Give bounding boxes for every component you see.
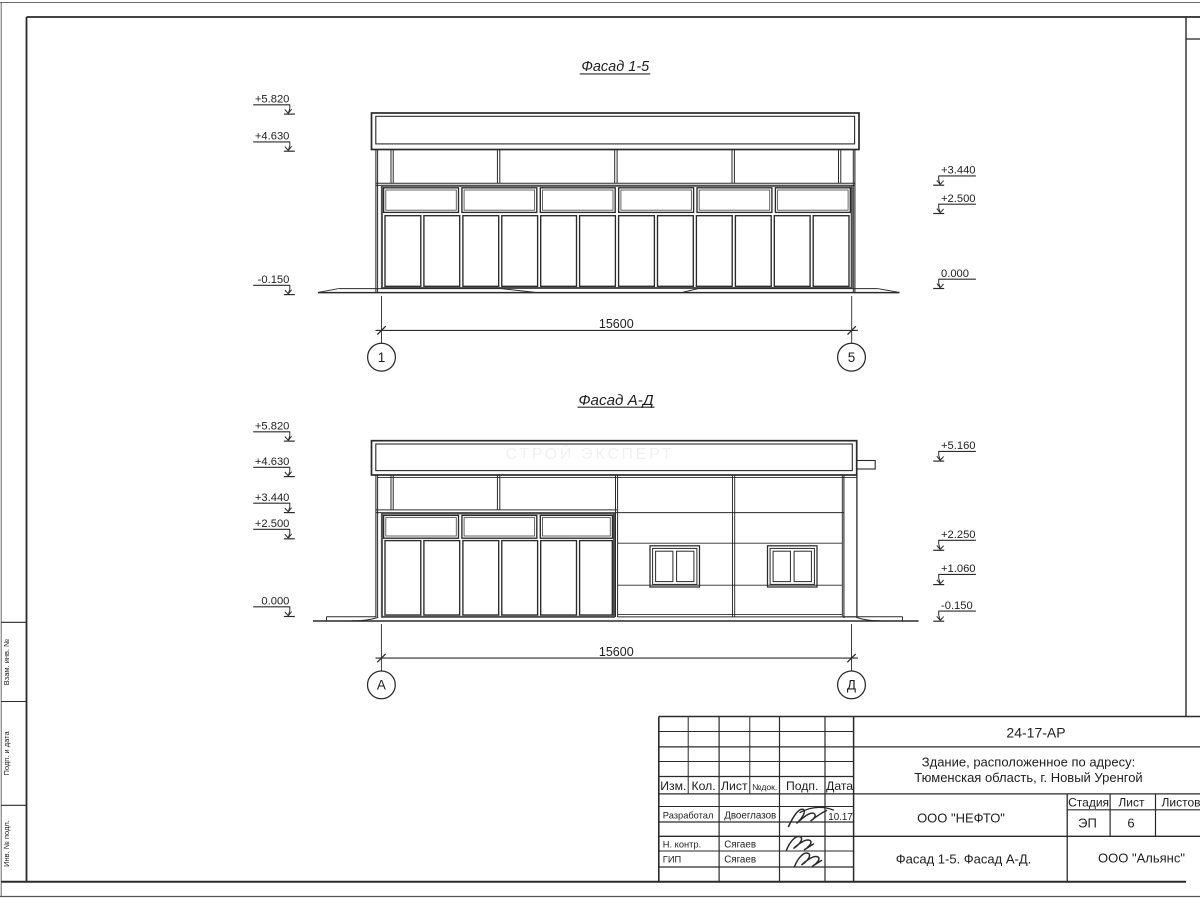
svg-text:ООО "НЕФТО": ООО "НЕФТО"	[917, 810, 1005, 825]
svg-text:+5.820: +5.820	[255, 421, 290, 433]
svg-text:+4.630: +4.630	[255, 456, 290, 468]
svg-text:Фасад 1-5: Фасад 1-5	[581, 59, 650, 75]
svg-text:Подп. и дата: Подп. и дата	[2, 730, 11, 775]
svg-text:А: А	[377, 678, 386, 693]
svg-text:Фасад 1-5. Фасад А-Д.: Фасад 1-5. Фасад А-Д.	[896, 852, 1032, 867]
svg-text:Взам. инв. №: Взам. инв. №	[2, 639, 11, 685]
svg-text:Кол.: Кол.	[692, 779, 716, 793]
svg-text:0.000: 0.000	[261, 596, 289, 608]
svg-text:+1.060: +1.060	[941, 563, 976, 575]
svg-text:+2.250: +2.250	[941, 529, 976, 541]
svg-text:СТРОЙ ЭКСПЕРТ: СТРОЙ ЭКСПЕРТ	[506, 445, 674, 463]
svg-text:Здание, расположенное по адрес: Здание, расположенное по адресу:	[922, 755, 1135, 770]
svg-text:15600: 15600	[599, 645, 634, 659]
svg-text:-0.150: -0.150	[258, 274, 290, 286]
svg-text:0.000: 0.000	[941, 268, 969, 280]
svg-text:+5.820: +5.820	[255, 94, 290, 106]
svg-text:+5.160: +5.160	[941, 440, 976, 452]
svg-text:15600: 15600	[599, 317, 634, 331]
svg-text:Д: Д	[847, 678, 856, 693]
svg-text:5: 5	[848, 350, 856, 365]
svg-text:Разработал: Разработал	[663, 811, 714, 821]
svg-text:ГИП: ГИП	[663, 855, 681, 865]
svg-text:Сягаев: Сягаев	[724, 855, 756, 866]
svg-text:Изм.: Изм.	[660, 779, 686, 793]
svg-text:Н. контр.: Н. контр.	[663, 840, 701, 850]
svg-text:24-17-АР: 24-17-АР	[1006, 725, 1065, 741]
svg-text:+3.440: +3.440	[941, 165, 976, 177]
svg-text:№док.: №док.	[752, 782, 777, 792]
svg-text:Лист: Лист	[1118, 796, 1145, 810]
svg-text:Дата: Дата	[826, 779, 853, 793]
svg-text:6: 6	[1127, 815, 1134, 830]
svg-text:Двоеглазов: Двоеглазов	[724, 811, 776, 822]
svg-text:10.17: 10.17	[828, 812, 853, 823]
svg-text:1: 1	[378, 350, 386, 365]
svg-text:+4.630: +4.630	[255, 131, 290, 143]
svg-text:Фасад А-Д: Фасад А-Д	[578, 392, 653, 409]
svg-text:ООО "Альянс": ООО "Альянс"	[1098, 850, 1185, 865]
svg-text:Подп.: Подп.	[786, 779, 818, 793]
svg-text:Тюменская область, г. Новый Ур: Тюменская область, г. Новый Уренгой	[914, 770, 1142, 785]
svg-text:Стадия: Стадия	[1068, 796, 1109, 810]
svg-text:+3.440: +3.440	[255, 492, 290, 504]
svg-text:Сягаев: Сягаев	[724, 840, 756, 851]
svg-text:ЭП: ЭП	[1078, 815, 1097, 830]
svg-text:Инв. № подл.: Инв. № подл.	[2, 820, 11, 867]
svg-text:-0.150: -0.150	[941, 600, 973, 612]
svg-text:+2.500: +2.500	[255, 518, 290, 530]
svg-text:Лист: Лист	[721, 779, 748, 793]
svg-text:Листов: Листов	[1162, 796, 1200, 810]
svg-text:+2.500: +2.500	[941, 193, 976, 205]
